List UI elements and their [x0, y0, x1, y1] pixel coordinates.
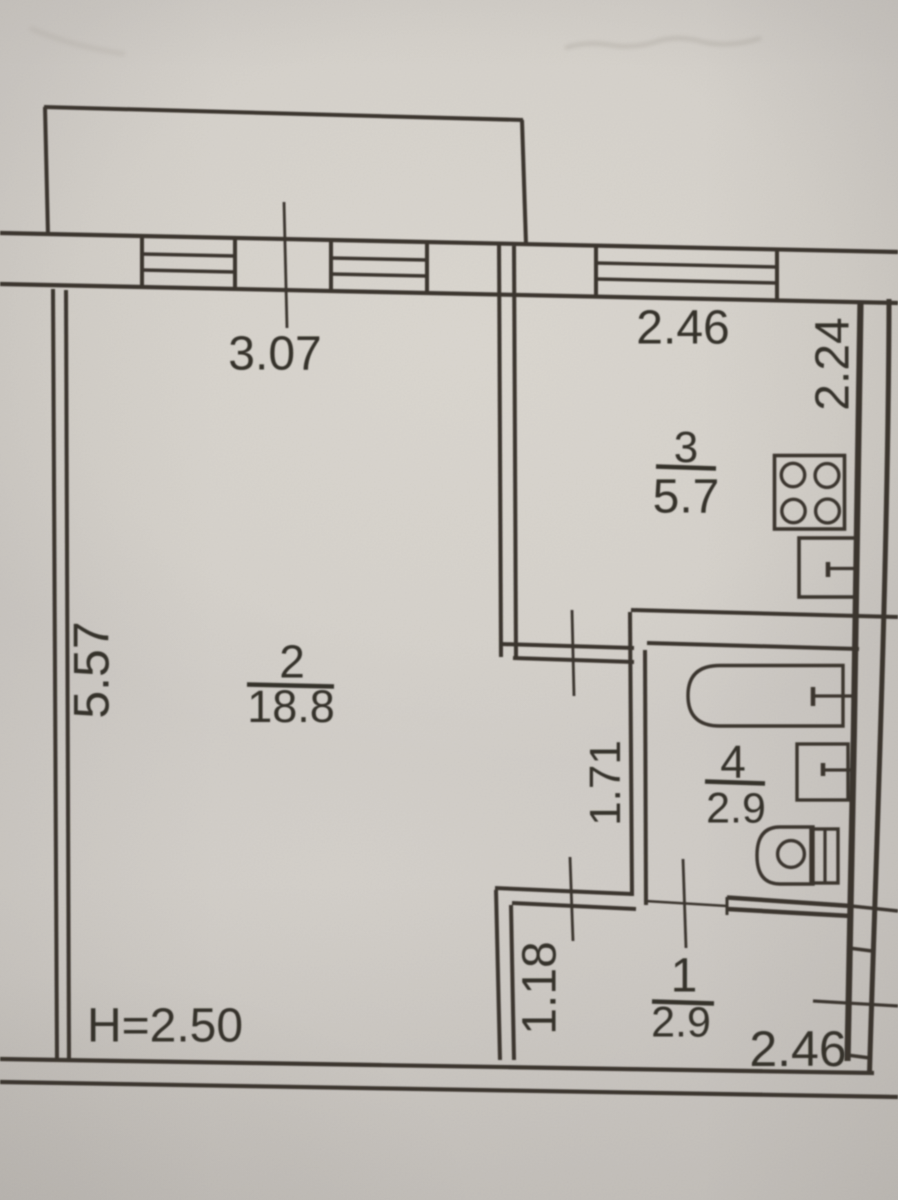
- svg-text:2: 2: [279, 636, 305, 688]
- svg-text:5.7: 5.7: [653, 471, 720, 524]
- svg-text:H=2.50: H=2.50: [87, 1000, 243, 1053]
- svg-text:1.18: 1.18: [514, 941, 567, 1034]
- svg-text:2.46: 2.46: [749, 1021, 846, 1077]
- svg-text:2.46: 2.46: [636, 302, 729, 355]
- svg-text:2.9: 2.9: [651, 999, 711, 1047]
- svg-text:1: 1: [671, 950, 698, 1003]
- svg-text:2.24: 2.24: [807, 317, 860, 410]
- svg-text:5.57: 5.57: [64, 621, 120, 718]
- svg-text:1.71: 1.71: [581, 740, 630, 826]
- svg-text:4: 4: [720, 736, 746, 788]
- svg-text:3.07: 3.07: [228, 328, 321, 381]
- svg-text:18.8: 18.8: [247, 681, 335, 732]
- svg-text:3: 3: [674, 423, 698, 472]
- svg-text:2.9: 2.9: [706, 785, 766, 833]
